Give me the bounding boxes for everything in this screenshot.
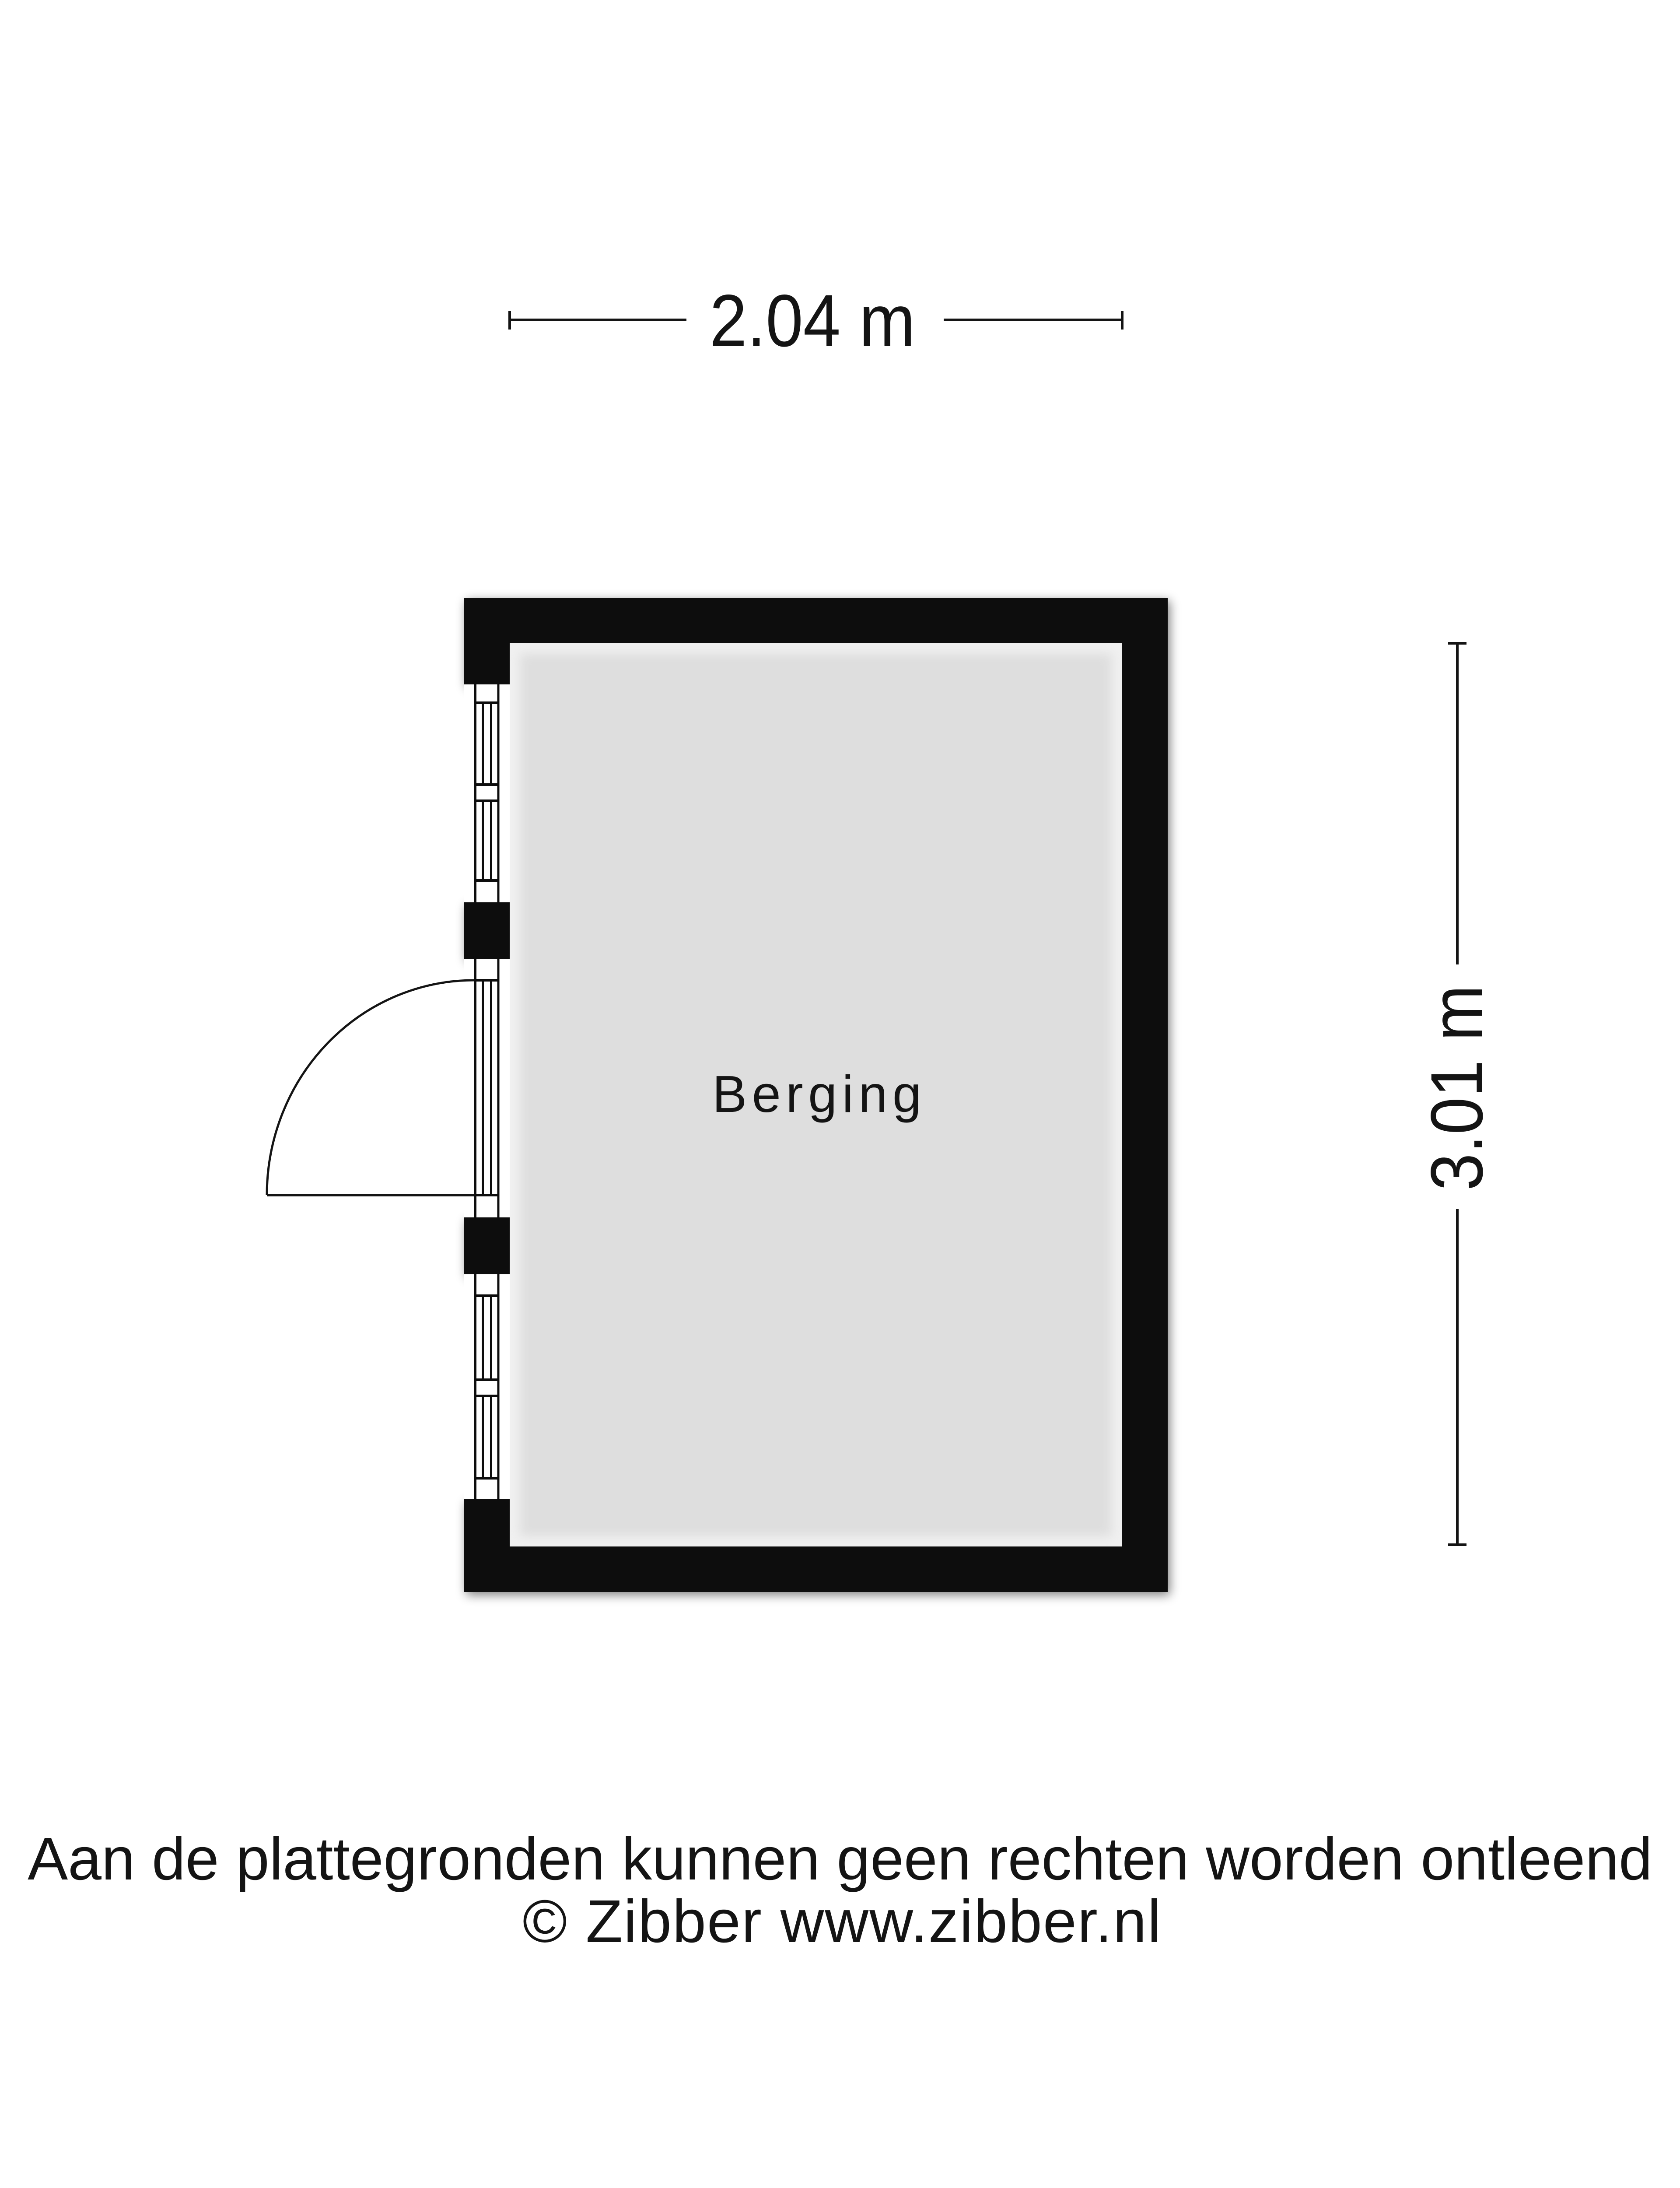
svg-text:2.04 m: 2.04 m xyxy=(710,279,915,362)
svg-text:3.01 m: 3.01 m xyxy=(1415,985,1498,1191)
svg-text:Aan de plattegronden kunnen ge: Aan de plattegronden kunnen geen rechten… xyxy=(28,1825,1652,1893)
svg-text:© Zibber www.zibber.nl: © Zibber www.zibber.nl xyxy=(523,1888,1161,1955)
